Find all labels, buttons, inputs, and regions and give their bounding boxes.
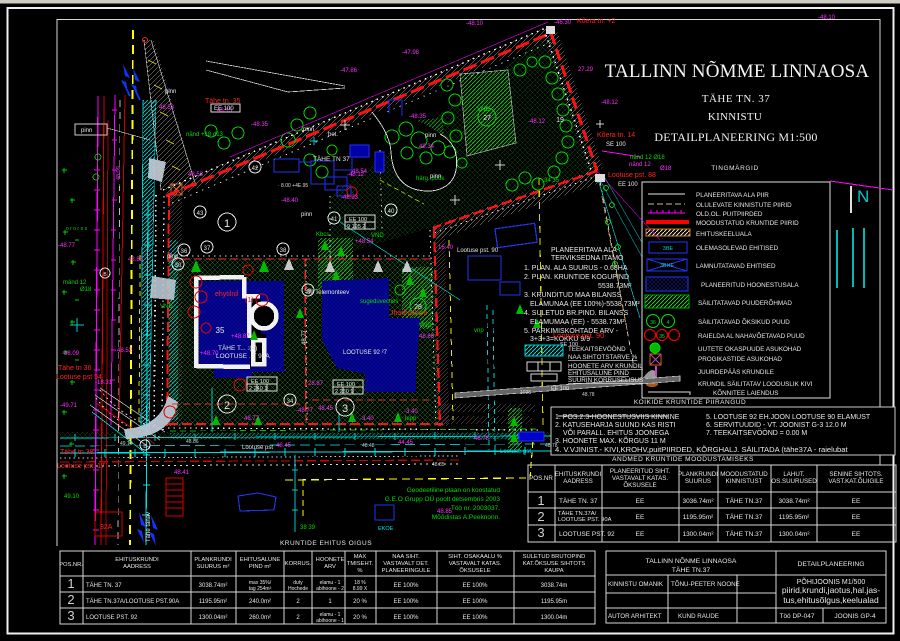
svg-text:PLANKRUNDI: PLANKRUNDI [194,557,232,563]
svg-text:plnn: plnn [167,254,178,260]
svg-text:-48.12: -48.12 [528,119,546,125]
svg-text:EE 100%: EE 100% [462,615,488,621]
svg-text:LOOTUSE PST. 90A: LOOTUSE PST. 90A [558,517,612,523]
svg-text:TEEKAITSEVÖÖND: TEEKAITSEVÖÖND [568,345,626,353]
svg-text:TÄHE TN 37: TÄHE TN 37 [313,155,350,163]
svg-text:UUTETE OKASPUUDE ASUKOHAD: UUTETE OKASPUUDE ASUKOHAD [698,346,802,353]
svg-text:49.10: 49.10 [120,441,133,447]
svg-text:EE 100: EE 100 [251,379,269,385]
svg-text:AUTOR ARHITEKT: AUTOR ARHITEKT [608,613,662,620]
svg-text:DETAILPLANEERING: DETAILPLANEERING [797,561,864,568]
svg-text:9 195 2: 9 195 2 [347,224,365,230]
svg-text:48.52: 48.52 [117,348,133,354]
svg-text:SUURUS: SUURUS [685,478,711,485]
svg-text:34 35: 34 35 [544,178,560,184]
svg-text:41: 41 [331,217,338,223]
svg-text:SUURIN KORRUSELISUS: SUURIN KORRUSELISUS [568,377,643,384]
svg-text:38 39: 38 39 [300,525,316,531]
svg-text:EE 100%: EE 100% [393,583,419,589]
svg-text:7. TEEKAITSEVÖÖND = 0.00 M: 7. TEEKAITSEVÖÖND = 0.00 M [706,429,807,437]
svg-text:Töö DP-047: Töö DP-047 [779,613,814,620]
svg-text:TÄHE TN.37A/: TÄHE TN.37A/ [558,510,597,517]
svg-text:48.85: 48.85 [432,462,445,468]
svg-text:KRUNTIDE EHITUS OIGUS: KRUNTIDE EHITUS OIGUS [280,540,372,547]
svg-text:EE 100: EE 100 [337,382,355,388]
svg-text:SENINE SIHTOTS.: SENINE SIHTOTS. [829,471,882,478]
svg-text:48.78: 48.78 [474,436,490,442]
svg-text:AADRESS: AADRESS [563,478,593,485]
svg-text:JOONIS GP-4: JOONIS GP-4 [834,613,876,620]
svg-text:VASTAVALT KATAS.: VASTAVALT KATAS. [612,475,668,482]
svg-text:SULETUD BRUTOPIND: SULETUD BRUTOPIND [523,554,586,560]
svg-text:Hochede: Hochede [288,586,308,592]
svg-text:48.85: 48.85 [437,509,453,515]
svg-text:4. V.VJINIST.- KIVI,KROHV,puit: 4. V.VJINIST.- KIVI,KROHV,puitPIIRDED, K… [555,445,849,454]
svg-text:48.78: 48.78 [545,443,558,449]
svg-text:1300.04m: 1300.04m [541,615,568,621]
svg-text:1195.95m²: 1195.95m² [683,514,714,521]
svg-text:Lootuse pst: Lootuse pst [242,445,273,451]
svg-text:19: 19 [556,117,564,124]
svg-text:8.99 X: 8.99 X [353,586,368,592]
svg-text:EHITUSKEELUALA: EHITUSKEELUALA [696,231,752,238]
svg-text:OLD.OL. PUITPIIRDED: OLD.OL. PUITPIIRDED [696,211,763,218]
svg-text:48.77: 48.77 [302,329,308,345]
svg-text:KINNISTU: KINNISTU [708,111,762,123]
svg-text:+48.54: +48.54 [355,239,374,245]
svg-text:PLANEERITUD SIHT.: PLANEERITUD SIHT. [610,468,670,475]
svg-text:5. LOOTUSE 92 EH.JOON LOOTUSE: 5. LOOTUSE 92 EH.JOON LOOTUSE 90 ELAMUST [706,414,871,421]
svg-text:OLEMASOLEVAD EHITISED: OLEMASOLEVAD EHITISED [696,245,779,252]
svg-text:6. SERVITUUDID - VT. JOONIST G: 6. SERVITUUDID - VT. JOONIST G-3 12.0 M [706,422,847,429]
svg-text:VAST.KAT.ÕLIIGILE: VAST.KAT.ÕLIIGILE [828,478,883,485]
svg-text:20 %: 20 % [353,615,367,621]
svg-text:TALLINN NÕMME LINNAOSA: TALLINN NÕMME LINNAOSA [605,60,870,82]
svg-text:OS.SUURUSED: OS.SUURUSED [771,478,817,485]
svg-text:TÄHE TN.37: TÄHE TN.37 [672,566,711,574]
svg-text:2 240 1: 2 240 1 [249,386,267,392]
svg-text:Lootuse pst. 90: Lootuse pst. 90 [553,331,604,340]
svg-text:NAA SIHTOTSTARVE %: NAA SIHTOTSTARVE % [568,354,638,361]
svg-text:POS.NR.: POS.NR. [59,562,83,568]
svg-text:48.45: 48.45 [318,406,334,412]
svg-text:EE: EE [636,531,645,538]
svg-text:SÄILITATAVAD PUUDERÕHMAD: SÄILITATAVAD PUUDERÕHMAD [698,298,792,307]
svg-text:-48.40: -48.40 [281,198,299,204]
svg-text:TÕNU-PEETER NOONE: TÕNU-PEETER NOONE [671,581,740,588]
svg-text:2: 2 [67,592,74,607]
svg-text:sugeduvecties: sugeduvecties [360,299,398,305]
svg-text:44.45: 44.45 [398,440,414,446]
svg-text:VND: VND [419,323,432,329]
svg-text:3038.74m²: 3038.74m² [199,583,228,589]
svg-text:nänd 12: nänd 12 [629,162,651,168]
svg-text:EE 100%: EE 100% [462,583,488,589]
svg-text:-48.12: -48.12 [601,100,619,106]
svg-text:Ø18: Ø18 [660,166,672,172]
svg-text:Mõõdistas A.Peeknonn.: Mõõdistas A.Peeknonn. [432,514,500,521]
svg-text:27: 27 [483,115,491,122]
svg-text:-3.40: -3.40 [404,409,418,415]
svg-text:Tähe tn 38: Tähe tn 38 [60,449,94,456]
svg-text:2. PLAN. KRUNTIDE KOGUPIND: 2. PLAN. KRUNTIDE KOGUPIND [524,274,629,281]
svg-text:LAMNUTATAVAD EHITISED: LAMNUTATAVAD EHITISED [696,263,776,270]
svg-text:42: 42 [252,166,259,172]
svg-text:POS.NR: POS.NR [529,475,553,482]
svg-text:Kõera tn. +2: Kõera tn. +2 [577,18,615,25]
svg-text:48.34: 48.34 [419,144,435,150]
svg-text:KUND RAUDE: KUND RAUDE [678,613,719,620]
svg-text:1025: 1025 [520,390,531,396]
svg-text:28: 28 [414,304,422,311]
svg-text:Tähe tänav: Tähe tänav [146,512,152,542]
svg-text:48.48: 48.48 [362,443,375,449]
svg-text:TMISEHT.: TMISEHT. [347,561,374,567]
svg-text:PLANKRUNDI: PLANKRUNDI [678,471,718,478]
svg-text:KINNISTU OMANIK: KINNISTU OMANIK [608,581,664,588]
svg-text:LOOTUSE ..T 90A: LOOTUSE ..T 90A [216,353,270,360]
svg-text:(1): (1) [245,297,254,304]
svg-text:-48.35: -48.35 [251,122,269,128]
svg-text:LOOTUSE 92 ²7: LOOTUSE 92 ²7 [343,350,388,356]
svg-text:SIHT. OSAKAALU %: SIHT. OSAKAALU % [448,554,502,560]
svg-text:Ø18: Ø18 [80,287,92,293]
svg-text:3038.74m: 3038.74m [541,583,568,589]
svg-text:240.0m²: 240.0m² [249,599,271,605]
svg-text:-47.86: -47.86 [340,68,358,74]
svg-text:KAUPA: KAUPA [544,568,563,574]
svg-text:SE 100: SE 100 [606,142,626,148]
svg-text:TINGMÄRGID: TINGMÄRGID [711,164,759,172]
svg-text:VND: VND [371,233,384,239]
svg-text:TÄHE T... :(7): TÄHE T... :(7) [218,344,257,352]
svg-text:1: 1 [537,493,544,508]
svg-text:EHITUSALUNE: EHITUSALUNE [240,557,281,563]
svg-text:tus,ehitusõlgus,keelualad: tus,ehitusõlgus,keelualad [783,595,879,605]
svg-text:TÄHE TN. 37: TÄHE TN. 37 [86,582,122,589]
svg-text:5538.73M²: 5538.73M² [598,283,632,290]
svg-text:-48.09: -48.09 [62,351,80,357]
svg-text:ehytilnil: ehytilnil [215,291,239,298]
svg-text:3: 3 [537,525,544,540]
svg-text:VND: VND [160,304,173,310]
svg-text:PIND m²: PIND m² [249,564,271,570]
svg-text:-48.77: -48.77 [58,243,76,249]
svg-text:TERVIKSEDNA ITAMO: TERVIKSEDNA ITAMO [551,255,624,262]
svg-text:36: 36 [650,320,656,326]
svg-text:3. KRUNDITUD MAA BILANSS: 3. KRUNDITUD MAA BILANSS [524,292,622,299]
svg-text:TÄHE TN. 37: TÄHE TN. 37 [702,93,771,105]
svg-text:35: 35 [216,326,225,335]
svg-text:28.87: 28.87 [308,381,324,387]
svg-text:Tähe tn 36: Tähe tn 36 [58,365,92,372]
svg-text:EE: EE [852,514,861,521]
svg-text:TÄHE TN. 37: TÄHE TN. 37 [559,497,598,505]
svg-text:48.86: 48.86 [186,439,199,445]
svg-text:KOIKIDE KRUNTIDE PIIRANGUD: KOIKIDE KRUNTIDE PIIRANGUD [634,399,746,406]
svg-text:27.29: 27.29 [578,67,594,73]
svg-text:Lootuse pst.: Lootuse pst. [500,449,533,455]
svg-text:4: 4 [667,320,670,326]
svg-text:nänd +18 d13: nänd +18 d13 [186,132,224,138]
svg-text:48.77: 48.77 [244,416,260,422]
svg-text:-48.10: -48.10 [466,21,484,27]
svg-text:35: 35 [659,334,665,340]
svg-text:Jhadritzkeie: Jhadritzkeie [390,310,427,317]
svg-text:4. SULETUD BR.PIND. BILANSS: 4. SULETUD BR.PIND. BILANSS [524,310,629,317]
svg-text:VND: VND [477,107,490,113]
svg-text:-49.71: -49.71 [60,403,78,409]
svg-text:VASTAVALT KATAS.: VASTAVALT KATAS. [449,561,502,567]
svg-text:16.40: 16.40 [438,245,454,251]
svg-text:3036.74m²: 3036.74m² [682,498,714,505]
svg-text:37: 37 [204,246,211,252]
svg-text:abihoone - 1: abihoone - 1 [316,618,344,624]
svg-text:AADRESS: AADRESS [123,564,151,570]
svg-text:pinn: pinn [301,212,312,218]
svg-text:48.53: 48.53 [188,172,204,178]
svg-text:1195.95m²: 1195.95m² [199,599,227,605]
svg-text:pinn: pinn [430,174,441,180]
svg-text:1: 1 [224,218,230,230]
svg-text:48.09: 48.09 [116,166,122,180]
svg-text:TÄHE TN.37: TÄHE TN.37 [726,530,763,538]
svg-text:39 Telemonteev: 39 Telemonteev [307,290,349,296]
svg-text:JUURDEPÄÄS KRUNDILE: JUURDEPÄÄS KRUNDILE [698,368,774,376]
svg-text:34: 34 [287,399,294,405]
svg-text:KÕNNITEE LAIENDUS: KÕNNITEE LAIENDUS [713,388,778,397]
svg-text:TÄHE TN.37: TÄHE TN.37 [726,497,763,505]
svg-text:plnn: plnn [303,127,314,133]
svg-text:-47.98: -47.98 [402,50,420,56]
svg-text:LOOTUSE PST. 92: LOOTUSE PST. 92 [86,615,138,621]
svg-text:pinn: pinn [425,133,436,139]
svg-text:3BНЕ: 3BНЕ [660,263,675,269]
svg-text:lepp: lepp [405,416,417,422]
svg-text:EHITUSALUNE PIND: EHITUSALUNE PIND [568,370,629,377]
svg-text:3: 3 [67,608,74,623]
svg-text:EE: EE [636,498,645,505]
svg-text:48.78: 48.78 [582,392,595,398]
svg-text:VASTAVALT DET.: VASTAVALT DET. [383,561,429,567]
svg-text:PLANEERITUD HOONESTUSALA: PLANEERITUD HOONESTUSALA [701,282,799,289]
svg-text:SÄILITATAVAD ÕKSIKUD PUUD: SÄILITATAVAD ÕKSIKUD PUUD [698,317,790,326]
svg-text:nänd 12 Ø18: nänd 12 Ø18 [630,155,665,161]
svg-text:48.53: 48.53 [159,105,175,111]
svg-text:tag 254m²: tag 254m² [249,586,272,592]
svg-text:40: 40 [388,209,395,215]
svg-text:Lootuse pst 54: Lootuse pst 54 [56,374,102,381]
svg-text:-46.30: -46.30 [554,20,572,26]
svg-text:SUURUS m²: SUURUS m² [197,564,230,570]
svg-text:PLANEERITAVA ALA PIIR: PLANEERITAVA ALA PIIR [696,192,769,199]
svg-text:EE 100: EE 100 [618,182,638,188]
svg-text:TÄHE TN.37A/LOOTUSE PST.90A: TÄHE TN.37A/LOOTUSE PST.90A [86,598,179,605]
svg-text:NAA SIHT.: NAA SIHT. [392,554,420,560]
svg-text:plnn: plnn [165,89,176,95]
svg-text:PLANEERINGULE: PLANEERINGULE [382,568,431,574]
svg-text:3. HOONETE MAX. KÕRGUS 11 M: 3. HOONETE MAX. KÕRGUS 11 M [555,436,666,445]
svg-text:PLANEERITAVA ALA: PLANEERITAVA ALA [551,247,617,254]
svg-text:Töö nr. 2003037.: Töö nr. 2003037. [451,505,500,512]
svg-text:1195.95m²: 1195.95m² [779,514,810,521]
svg-text:EHITUSKRUNDI: EHITUSKRUNDI [555,471,602,478]
svg-text:N: N [857,187,869,206]
svg-text:HOONETE: HOONETE [316,557,345,563]
svg-text:1300.04m²: 1300.04m² [778,531,810,538]
svg-text:EE 100: EE 100 [349,217,367,223]
svg-text:EHITUSKRUNDI: EHITUSKRUNDI [115,557,159,563]
svg-text:1300.04m²: 1300.04m² [199,615,228,621]
svg-text:EE: EE [636,514,645,521]
svg-text:Lootuse pst. 17: Lootuse pst. 17 [57,463,105,470]
svg-text:ELAMUMAA (EE) - 5538.73M²: ELAMUMAA (EE) - 5538.73M² [530,319,625,326]
svg-text:MAX: MAX [354,554,367,560]
svg-text:G.E.O Grupp OÜ poolt detsembri: G.E.O Grupp OÜ poolt detsembris 2003 [385,495,501,503]
svg-text:EE 100%: EE 100% [462,599,488,605]
svg-text:EE: EE [852,531,861,538]
svg-text:KRUNDIL SÄILITATAV LOODUSLIK K: KRUNDIL SÄILITATAV LOODUSLIK KIVI [698,380,813,388]
svg-text:ELAMUNAA (EE 100%)-5538.73M²: ELAMUNAA (EE 100%)-5538.73M² [530,301,640,308]
svg-text:ARV: ARV [324,564,336,570]
svg-text:Lootuse pst. 88: Lootuse pst. 88 [608,172,656,179]
svg-text:ANDMED KRUNTIDE MOODUSTAMISEKS: ANDMED KRUNTIDE MOODUSTAMISEKS [612,456,754,463]
svg-text:+48.87: +48.87 [231,334,250,340]
svg-text:· 8.00 +4E.95: · 8.00 +4E.95 [278,183,308,189]
svg-text:36: 36 [181,249,188,255]
svg-text:-48.10: -48.10 [818,15,836,21]
svg-text:LOOTUSE PST. 92: LOOTUSE PST. 92 [559,531,615,538]
svg-text:2: 2 [537,509,544,524]
svg-text:49.10: 49.10 [64,494,80,500]
svg-text:HOONETE ARV KRUNDIL: HOONETE ARV KRUNDIL [568,363,643,370]
svg-text:Geodeetiline plaan on koostatu: Geodeetiline plaan on koostatud [407,487,501,494]
svg-text:260.0m²: 260.0m² [249,615,271,621]
svg-text:EE 100: EE 100 [551,386,569,392]
svg-text:vnp: vnp [474,328,484,334]
svg-text:1. PLAN. ALA SUURUS - 0.68HA: 1. PLAN. ALA SUURUS - 0.68HA [524,265,628,272]
svg-text:EE: EE [852,498,861,505]
svg-text:EKOE: EKOE [378,526,394,532]
svg-text:abihoone - 2: abihoone - 2 [316,586,344,592]
svg-text:KORRUS.: KORRUS. [285,561,312,567]
svg-text:KAT.ÕKSUSE SIHTOTS: KAT.ÕKSUSE SIHTOTS [523,560,586,567]
svg-text:1. POS.2.3-HOONESTUSVIIS KINNI: 1. POS.2.3-HOONESTUSVIIS KINNINE [555,414,680,421]
svg-text:-48.35: -48.35 [409,114,427,120]
svg-text:TALLINN NÕNME LINNAOSA: TALLINN NÕNME LINNAOSA [646,556,737,565]
svg-text:48.54: 48.54 [352,169,368,175]
svg-text:-48.77: -48.77 [296,408,314,414]
svg-text:3BE: 3BE [663,246,674,252]
svg-text:EE 100%: EE 100% [393,599,419,605]
svg-text:OLULEVATE KINNISTUTE PIIRID: OLULEVATE KINNISTUTE PIIRID [696,202,792,209]
svg-text:LAHUT.: LAHUT. [783,471,805,478]
svg-text:30: 30 [175,263,182,269]
svg-text:2. KATUSEHARJA SUUND KAS RISTI: 2. KATUSEHARJA SUUND KAS RISTI [555,422,676,429]
svg-text:Kbcs: Kbcs [316,232,329,238]
svg-text:1300.04m²: 1300.04m² [682,531,714,538]
svg-text:48.41: 48.41 [174,470,190,476]
svg-text:Lootuse pst. 90: Lootuse pst. 90 [457,248,499,254]
svg-text:2 260 1: 2 260 1 [335,389,353,395]
svg-text:2: 2 [224,400,230,412]
svg-text:VÕI PARALL. EHITUS JOONEGA: VÕI PARALL. EHITUS JOONEGA [563,428,669,437]
svg-text:MOODUSTATUD: MOODUSTATUD [720,471,768,478]
svg-text:48.66: 48.66 [419,334,435,340]
svg-text:piirid,krundi,jaotus,hal.jas-: piirid,krundi,jaotus,hal.jas- [782,585,880,595]
svg-text:-48.33: -48.33 [341,195,359,201]
svg-text:EE 100: EE 100 [214,106,234,112]
svg-text:3: 3 [342,403,348,415]
svg-text:MOODUSTATUD KRUNTIDE PIIRID: MOODUSTATUD KRUNTIDE PIIRID [696,220,799,227]
svg-text:DETAILPLANEERING M1:500: DETAILPLANEERING M1:500 [654,130,817,144]
svg-text:3038.74m²: 3038.74m² [778,498,810,505]
svg-text:KINNISTUST: KINNISTUST [726,478,763,485]
svg-text:%: % [357,568,362,574]
svg-text:38: 38 [280,248,287,254]
svg-text:Kõera tn. 14: Kõera tn. 14 [597,132,635,139]
svg-text:bet.: bet. [328,132,338,138]
svg-text:48.45: 48.45 [276,443,292,449]
svg-text:32A: 32A [100,524,113,531]
svg-text:pinn: pinn [81,128,92,134]
svg-text:ÕKSUSELE: ÕKSUSELE [623,482,656,489]
svg-text:43: 43 [197,211,204,217]
svg-text:mänd 12: mänd 12 [63,280,87,286]
svg-text:48.83: 48.83 [128,257,144,263]
svg-text:1: 1 [67,576,74,591]
svg-text:20 %: 20 % [353,599,367,605]
svg-text:o r o r o s: o r o r o s [66,226,88,232]
svg-text:PROGIKASTIDE ASUKOHAD: PROGIKASTIDE ASUKOHAD [698,356,782,363]
svg-text:RAIELDA AL NAHAVÕETAVAD PUUD: RAIELDA AL NAHAVÕETAVAD PUUD [698,331,805,340]
svg-text:EE 100%: EE 100% [393,615,419,621]
svg-text:39: 39 [305,289,312,295]
svg-text:1195.95m: 1195.95m [541,599,567,605]
svg-text:ÕKSUSELE: ÕKSUSELE [459,567,490,574]
svg-text:TÄHE TN.37: TÄHE TN.37 [726,513,763,521]
svg-text:-3.40: -3.40 [360,416,374,422]
